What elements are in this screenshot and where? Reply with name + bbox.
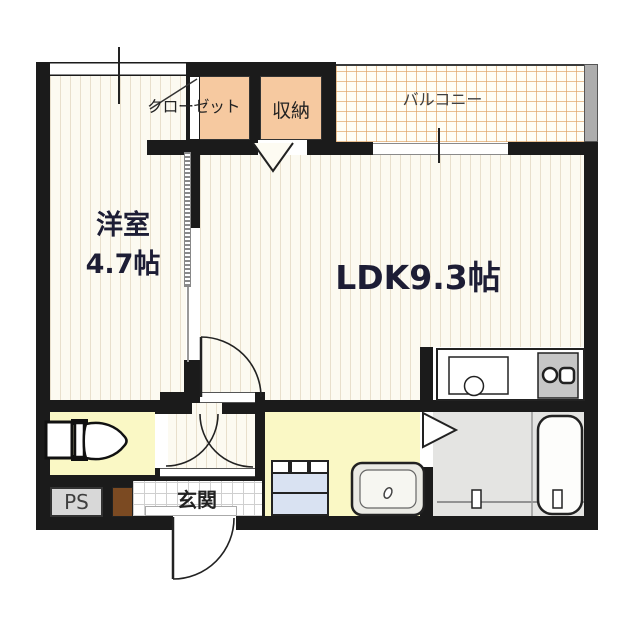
floor-plan: PS — [0, 0, 633, 640]
western-room-size-label: 4.7帖 — [70, 242, 176, 281]
balcony-label: バルコニー — [385, 86, 500, 110]
closet-label: クローゼット — [147, 93, 240, 117]
faucet-icon — [553, 490, 562, 508]
washbasin-icon — [352, 463, 424, 515]
bathroom-door-icon — [423, 413, 456, 447]
toilet-door-arc — [166, 414, 218, 466]
ldk-label: LDK9.3帖 — [328, 251, 508, 299]
entrance-label: 玄関 — [162, 484, 232, 513]
burner-icon — [560, 368, 574, 383]
toilet-icon — [46, 419, 127, 461]
burner-icon — [543, 368, 557, 382]
washroom-cabinet-icon — [272, 461, 328, 515]
storage-opening-mark — [253, 143, 293, 171]
sink-drain-icon — [465, 377, 484, 396]
washroom-door-arc — [200, 414, 253, 467]
storage-label: 収納 — [262, 96, 320, 123]
faucet-icon — [472, 490, 481, 508]
western-room-name-label: 洋室 — [78, 203, 168, 242]
entrance-door — [173, 517, 234, 579]
ldk-door — [201, 337, 261, 397]
kitchen-counter-icon — [437, 349, 584, 400]
